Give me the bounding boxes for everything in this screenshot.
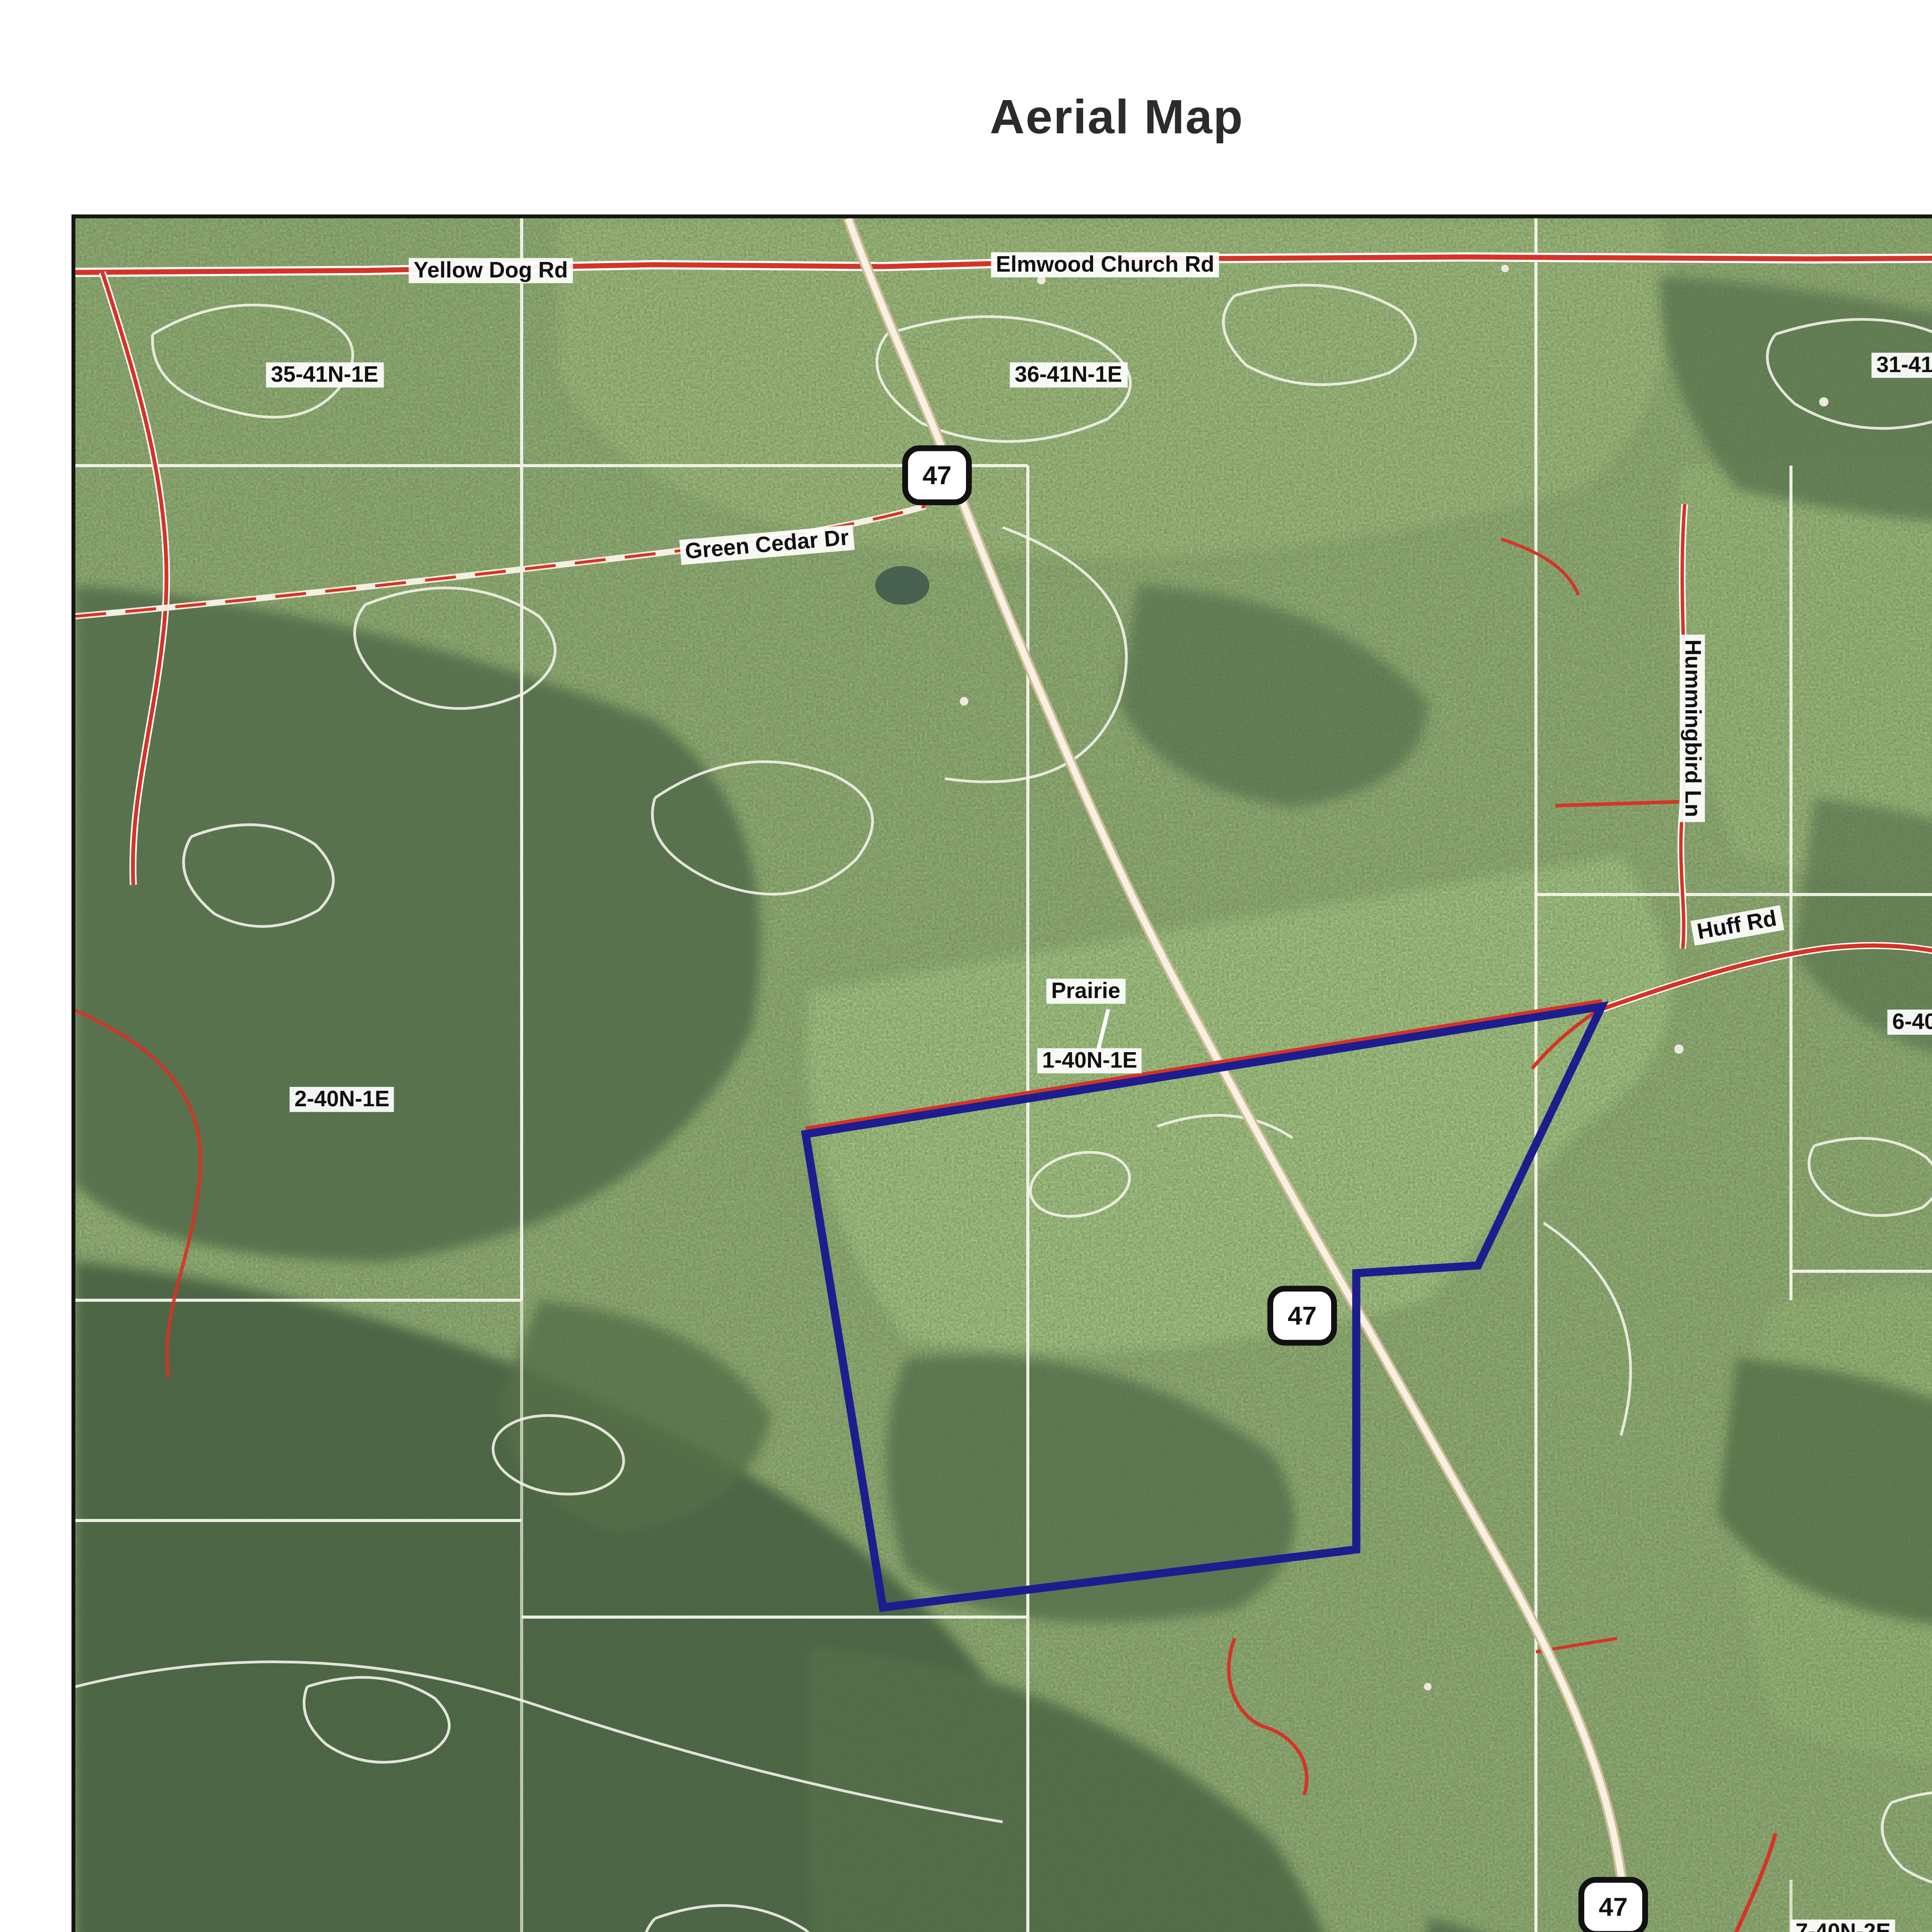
aerial-map-page: Aerial Map xyxy=(0,0,1932,1932)
road-label-yellow-dog-rd: Yellow Dog Rd xyxy=(409,258,573,283)
aerial-imagery xyxy=(75,218,1932,1932)
section-label-31-41n-2e: 31-41N-2E xyxy=(1871,353,1932,378)
road-label-elmwood-church-rd: Elmwood Church Rd xyxy=(991,252,1219,277)
section-label-2-40n-1e: 2-40N-1E xyxy=(289,1087,394,1112)
section-label-6-40n-2e: 6-40N-2E xyxy=(1887,1010,1932,1034)
section-label-36-41n-1e: 36-41N-1E xyxy=(1010,362,1127,387)
highway-47-shield: 47 xyxy=(1267,1286,1337,1346)
road-label-hummingbird-ln: Hummingbird Ln xyxy=(1680,635,1705,822)
place-label-prairie: Prairie xyxy=(1046,979,1125,1003)
section-label-7-40n-2e: 7-40N-2E xyxy=(1791,1920,1895,1932)
print-page-wrap: Aerial Map xyxy=(0,0,1932,1932)
section-label-35-41n-1e: 35-41N-1E xyxy=(266,362,383,387)
highway-47-shield: 47 xyxy=(902,446,972,505)
aerial-texture xyxy=(75,218,1932,1932)
aerial-map: Yellow Dog Rd Elmwood Church Rd Green Ce… xyxy=(71,214,1932,1932)
page-title: Aerial Map xyxy=(0,89,1932,145)
section-label-1-40n-1e: 1-40N-1E xyxy=(1037,1048,1142,1073)
highway-47-shield: 47 xyxy=(1578,1877,1648,1932)
